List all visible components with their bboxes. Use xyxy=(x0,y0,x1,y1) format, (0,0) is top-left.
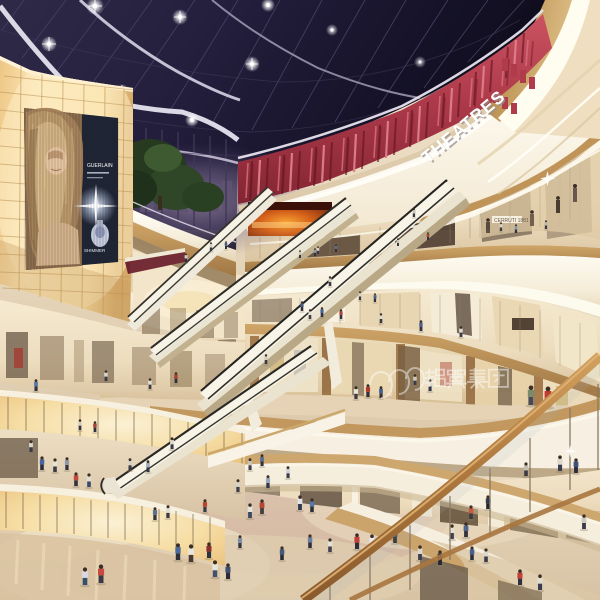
svg-text:GUERLAIN: GUERLAIN xyxy=(87,163,113,169)
svg-text:CERRUTI 1881: CERRUTI 1881 xyxy=(494,218,529,224)
svg-text:SHIMMER: SHIMMER xyxy=(84,248,106,253)
